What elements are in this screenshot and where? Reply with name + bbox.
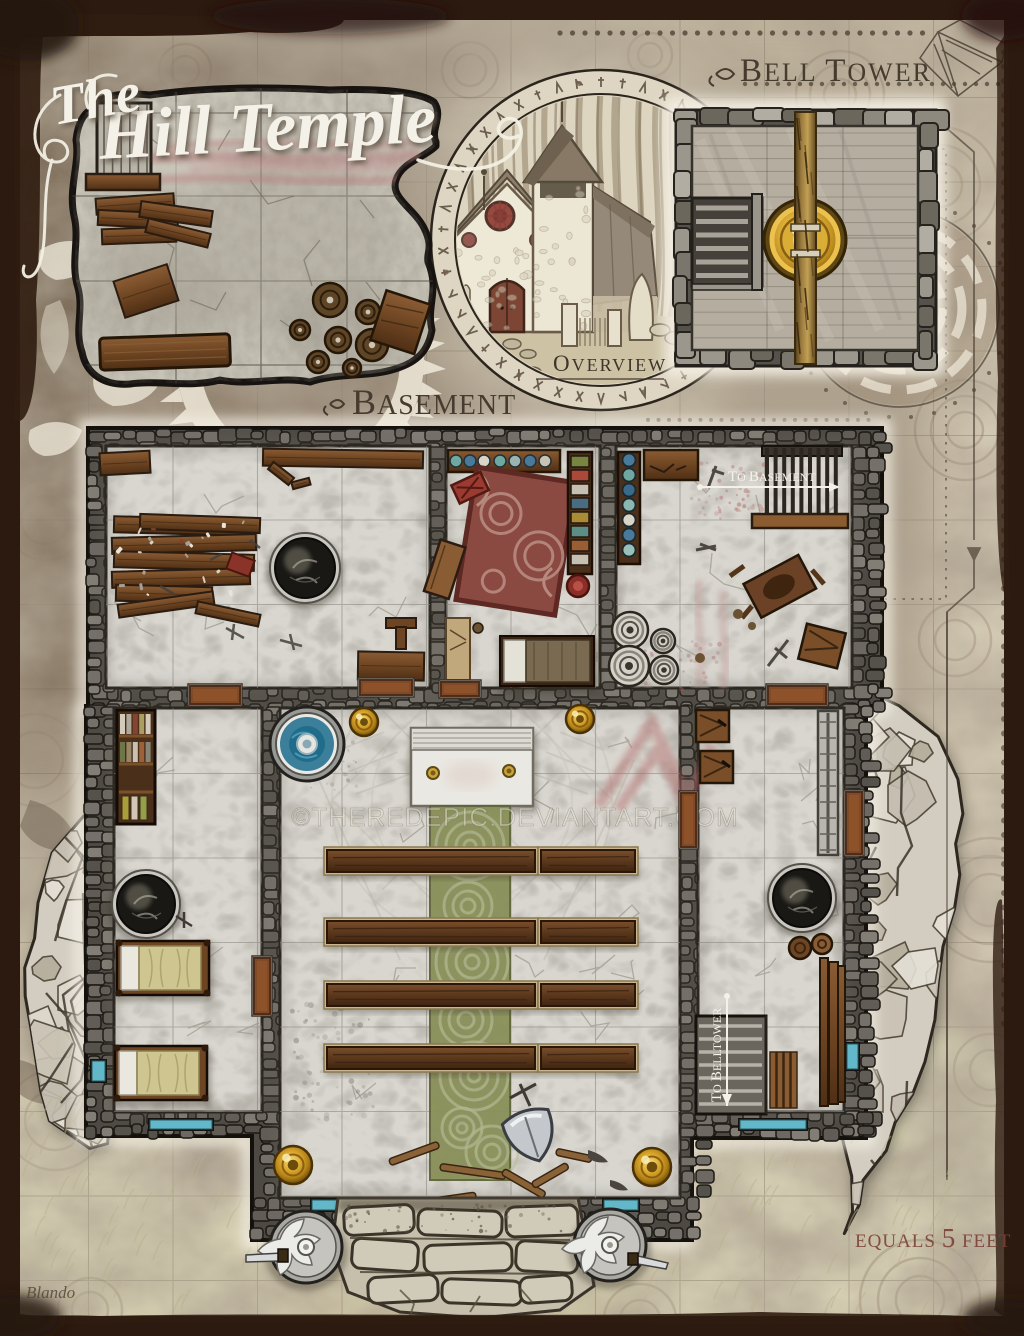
svg-text:TO BASEMENT: TO BASEMENT bbox=[728, 469, 816, 485]
svg-text:Blando: Blando bbox=[26, 1283, 75, 1302]
svg-text:TO BELLTOWER: TO BELLTOWER bbox=[709, 1008, 725, 1102]
svg-text:©THEREDEPIC.DEVIANTART.COM: ©THEREDEPIC.DEVIANTART.COM bbox=[291, 802, 738, 832]
svg-text:BELL TOWER: BELL TOWER bbox=[740, 53, 932, 89]
svg-text:OVERVIEW: OVERVIEW bbox=[553, 351, 667, 376]
